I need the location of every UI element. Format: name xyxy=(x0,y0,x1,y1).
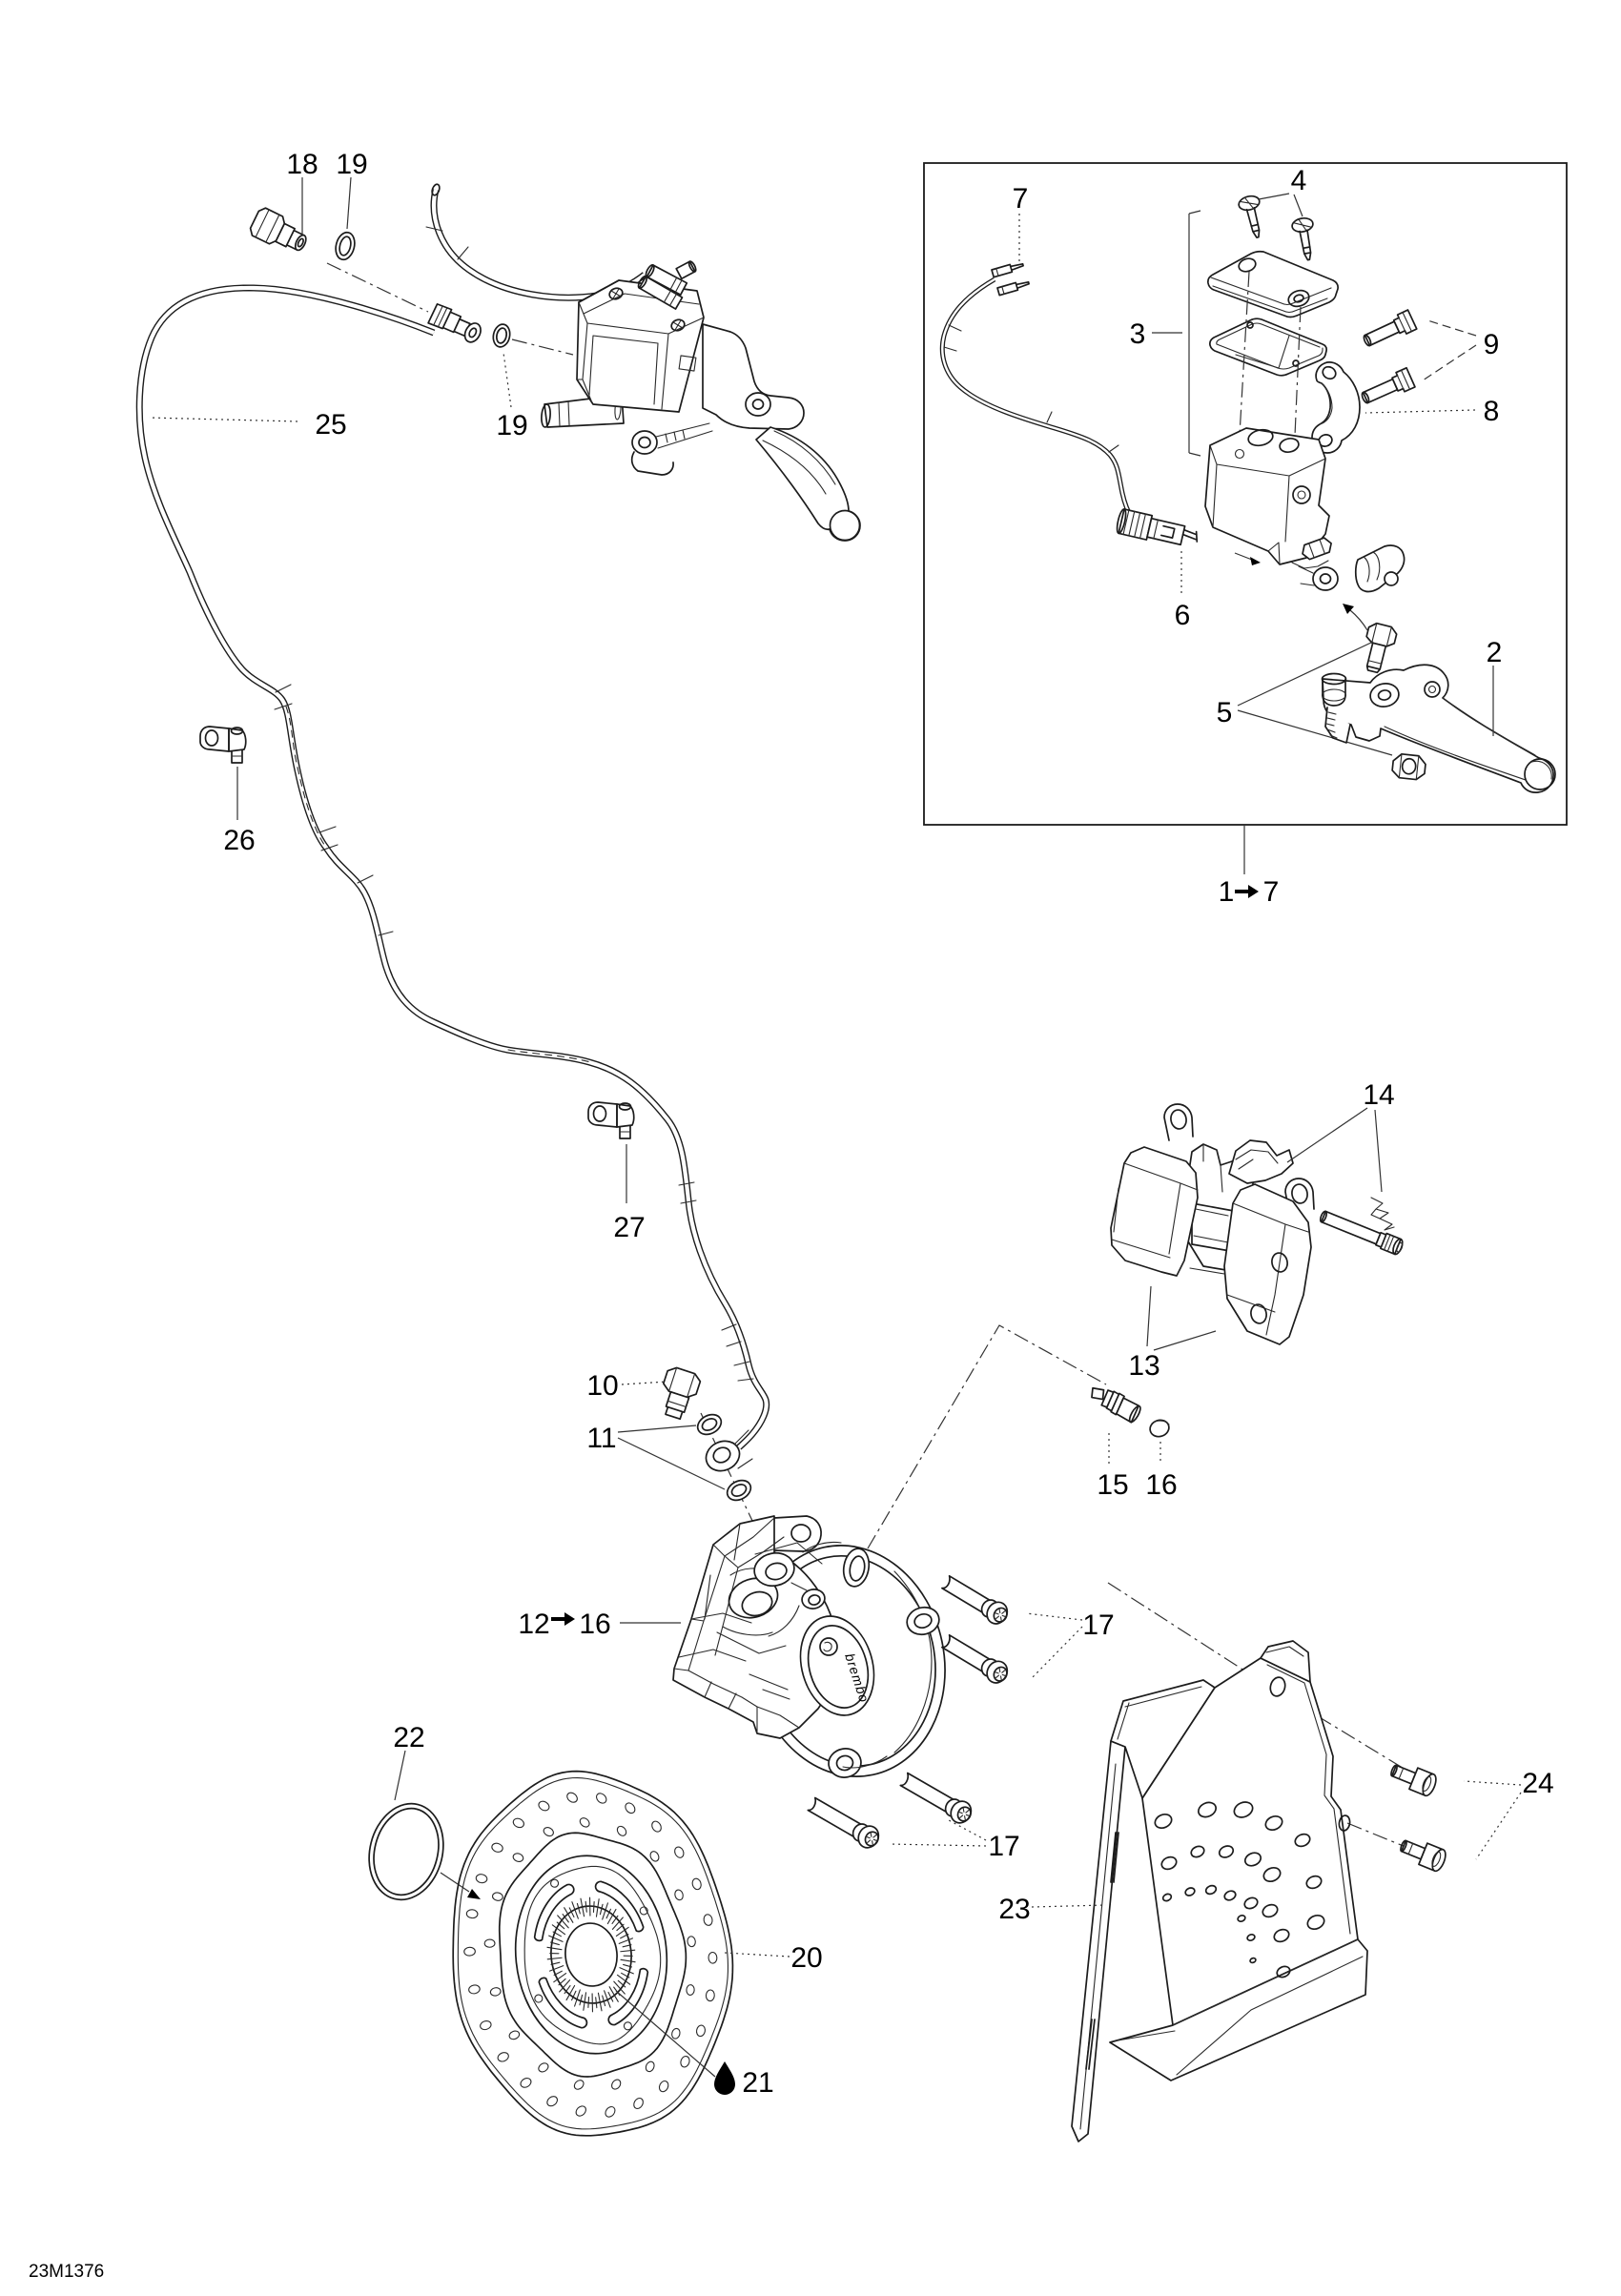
svg-text:20: 20 xyxy=(790,1942,822,1974)
svg-text:15: 15 xyxy=(1097,1469,1128,1501)
svg-text:21: 21 xyxy=(742,2067,773,2099)
svg-text:24: 24 xyxy=(1522,1768,1553,1799)
svg-text:23M1376: 23M1376 xyxy=(29,2262,104,2282)
svg-text:25: 25 xyxy=(315,409,346,441)
svg-text:17: 17 xyxy=(988,1831,1019,1862)
svg-text:16: 16 xyxy=(1145,1469,1177,1501)
svg-text:16: 16 xyxy=(579,1609,610,1640)
svg-text:13: 13 xyxy=(1128,1350,1159,1382)
svg-text:6: 6 xyxy=(1175,600,1191,631)
svg-text:12: 12 xyxy=(518,1609,549,1640)
svg-text:8: 8 xyxy=(1484,396,1500,427)
svg-text:7: 7 xyxy=(1263,876,1280,908)
svg-text:26: 26 xyxy=(223,825,255,856)
svg-text:2: 2 xyxy=(1487,637,1503,668)
svg-text:10: 10 xyxy=(586,1370,618,1402)
svg-text:27: 27 xyxy=(613,1212,645,1243)
svg-text:4: 4 xyxy=(1291,165,1307,196)
svg-text:19: 19 xyxy=(336,149,367,180)
svg-text:7: 7 xyxy=(1013,183,1029,215)
svg-text:11: 11 xyxy=(586,1423,616,1454)
svg-text:22: 22 xyxy=(393,1722,424,1753)
svg-text:14: 14 xyxy=(1363,1079,1394,1111)
svg-text:3: 3 xyxy=(1130,318,1146,350)
svg-text:1: 1 xyxy=(1219,876,1235,908)
svg-text:23: 23 xyxy=(998,1894,1030,1925)
svg-text:17: 17 xyxy=(1082,1609,1114,1641)
svg-text:5: 5 xyxy=(1217,697,1233,728)
svg-text:19: 19 xyxy=(496,410,527,441)
svg-text:9: 9 xyxy=(1484,329,1500,360)
svg-text:18: 18 xyxy=(286,149,318,180)
